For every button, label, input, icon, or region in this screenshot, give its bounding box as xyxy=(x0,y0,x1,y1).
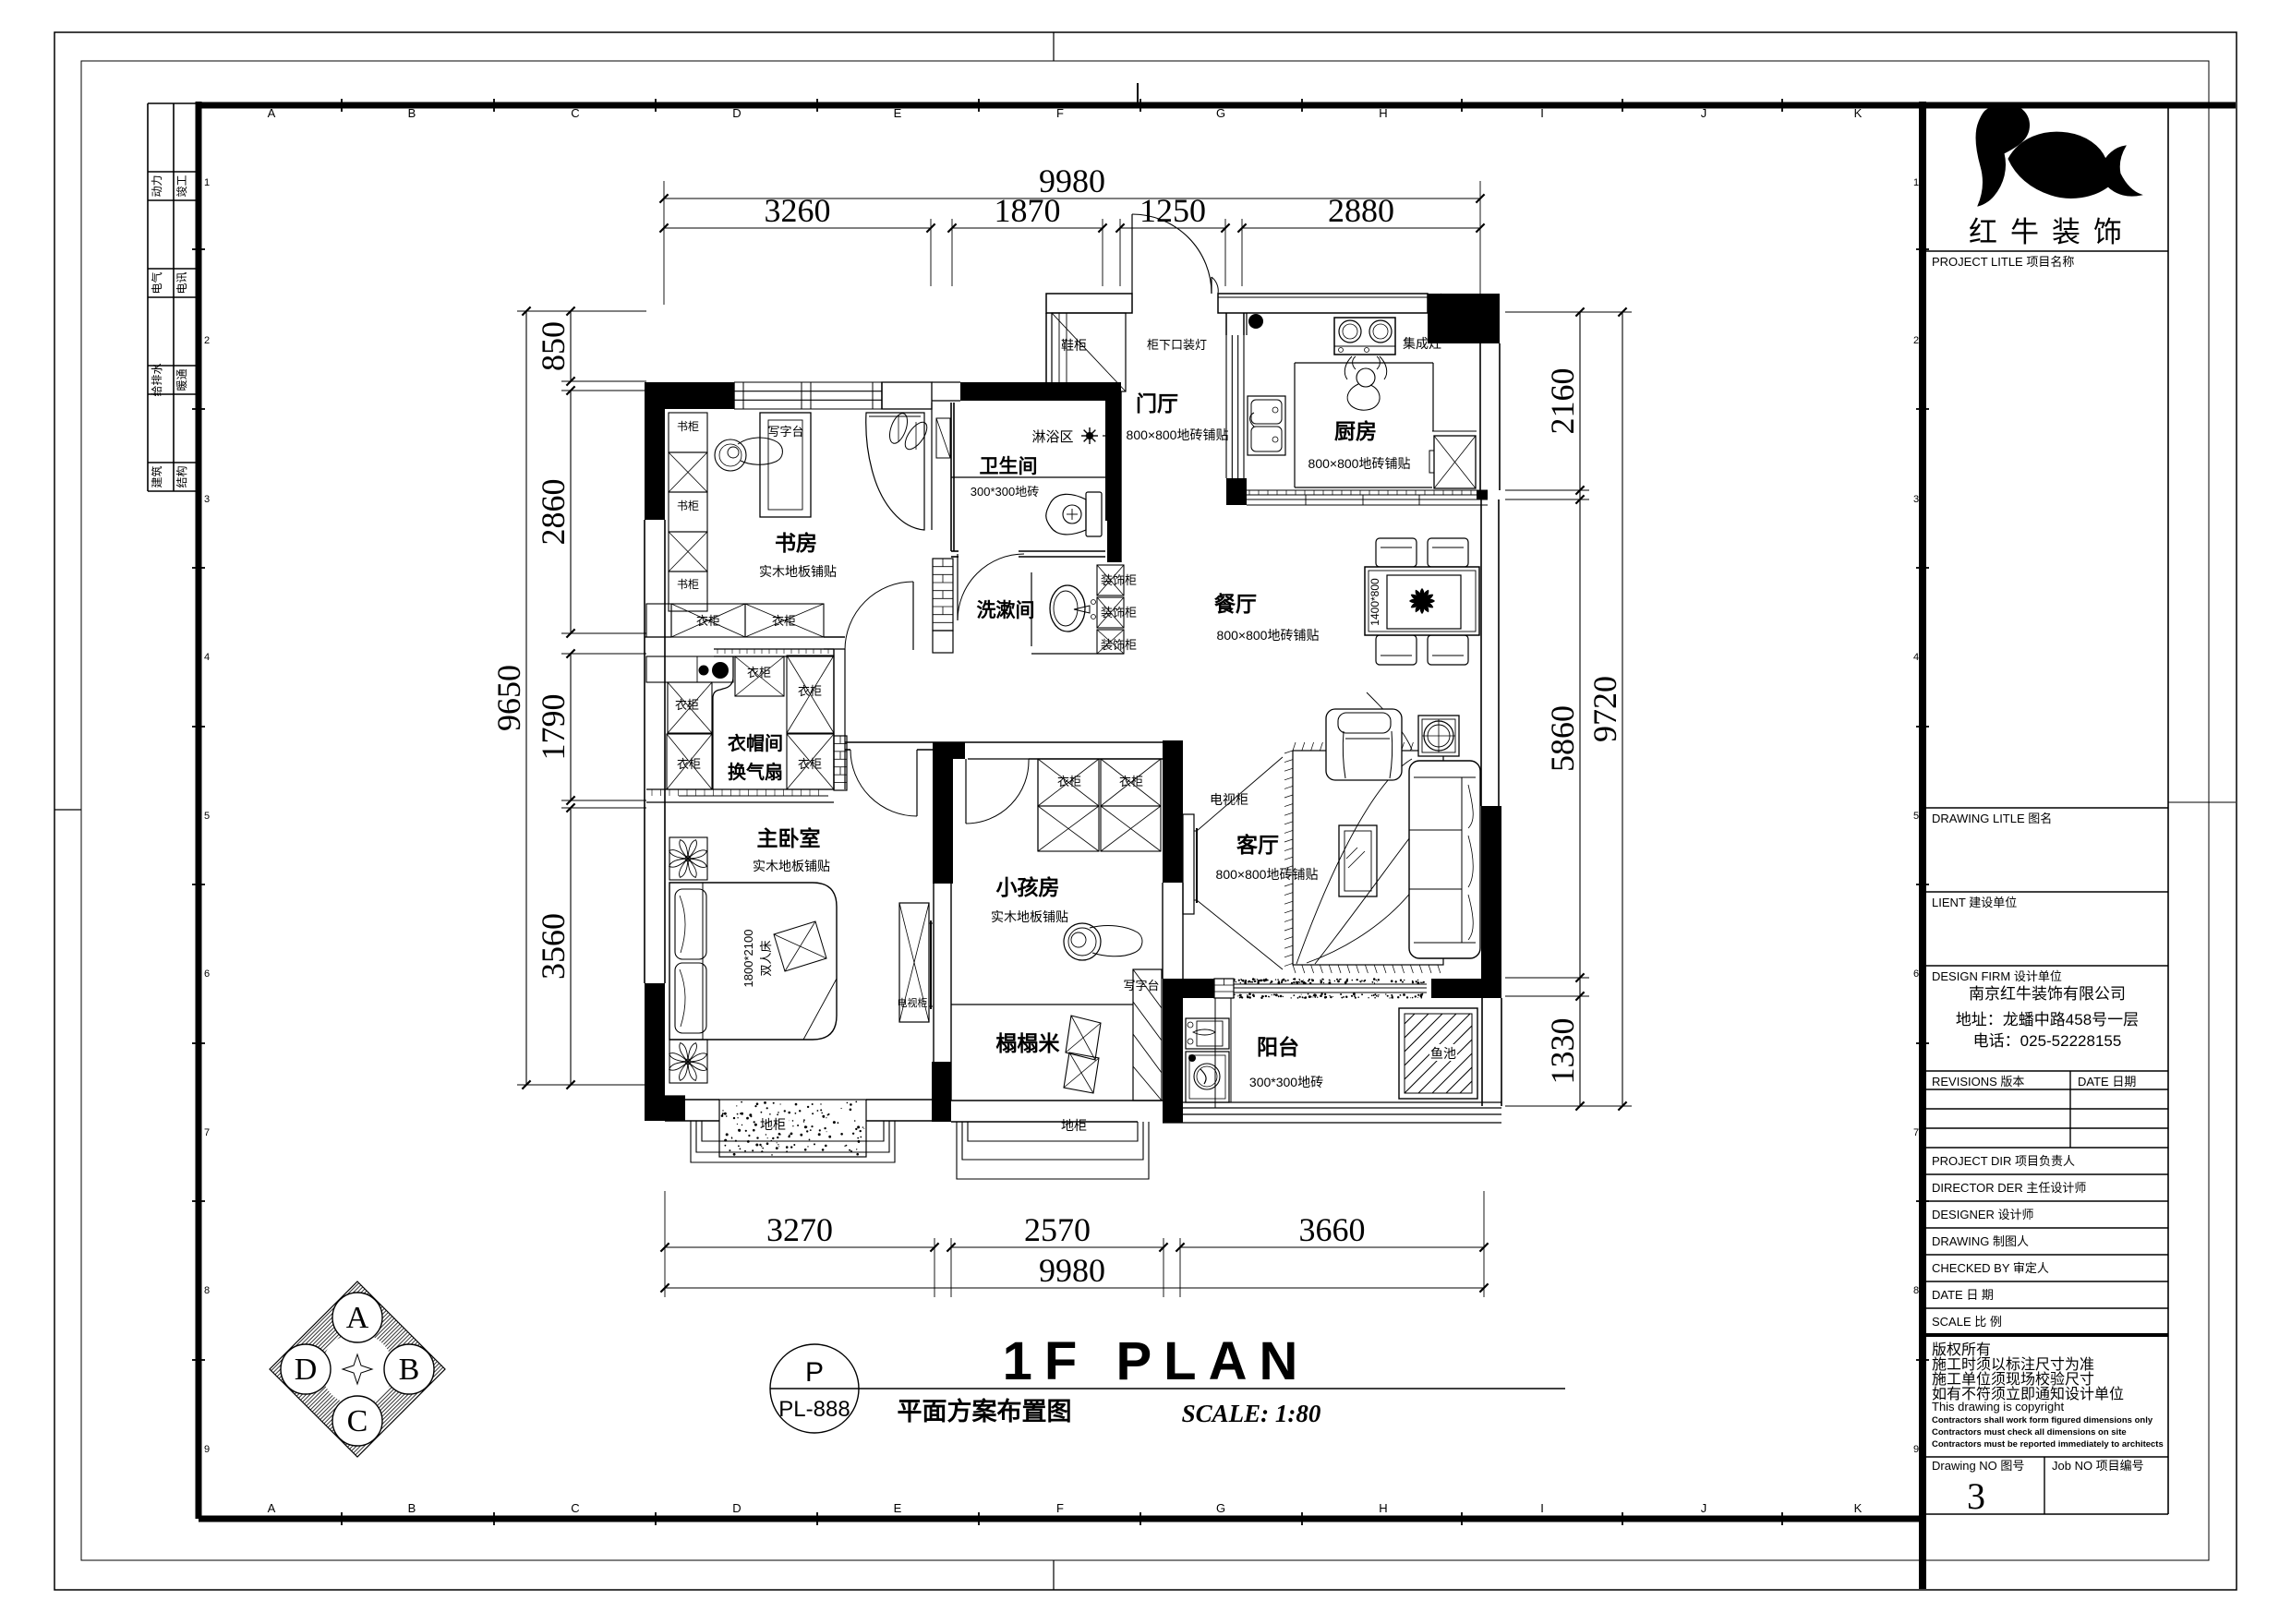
svg-text:2860: 2860 xyxy=(535,479,572,546)
svg-text:洗漱间: 洗漱间 xyxy=(977,600,1035,621)
svg-text:2880: 2880 xyxy=(1328,192,1394,229)
svg-text:3260: 3260 xyxy=(765,192,831,229)
svg-text:暖通: 暖通 xyxy=(175,368,188,391)
svg-text:E: E xyxy=(894,106,902,120)
svg-text:电视柜: 电视柜 xyxy=(898,996,928,1009)
svg-text:卫生间: 卫生间 xyxy=(980,455,1038,477)
svg-text:3660: 3660 xyxy=(1299,1211,1366,1248)
svg-text:双人床: 双人床 xyxy=(759,940,773,976)
svg-text:D: D xyxy=(732,106,741,120)
svg-text:A: A xyxy=(268,106,276,120)
svg-text:5: 5 xyxy=(204,811,210,822)
svg-text:300*300地砖: 300*300地砖 xyxy=(971,485,1039,499)
svg-text:书柜: 书柜 xyxy=(677,420,699,433)
svg-text:LIENT 建设单位: LIENT 建设单位 xyxy=(1932,896,2017,909)
svg-text:结构: 结构 xyxy=(175,465,188,487)
svg-text:衣柜: 衣柜 xyxy=(772,614,796,628)
svg-text:DATE 日期: DATE 日期 xyxy=(2078,1075,2136,1089)
svg-text:850: 850 xyxy=(535,321,572,371)
svg-text:客厅: 客厅 xyxy=(1236,833,1279,857)
svg-text:施工时须以标注尺寸为准: 施工时须以标注尺寸为准 xyxy=(1932,1356,2094,1373)
svg-text:H: H xyxy=(1379,106,1387,120)
svg-text:实木地板铺贴: 实木地板铺贴 xyxy=(753,859,830,873)
svg-text:3: 3 xyxy=(1913,494,1919,505)
svg-text:鞋柜: 鞋柜 xyxy=(1061,338,1087,353)
svg-text:800×800地砖铺贴: 800×800地砖铺贴 xyxy=(1216,867,1319,882)
svg-text:3560: 3560 xyxy=(535,913,572,980)
svg-text:C: C xyxy=(571,106,579,120)
svg-text:Drawing NO 图号: Drawing NO 图号 xyxy=(1932,1459,2024,1473)
svg-text:B: B xyxy=(408,106,416,120)
svg-text:PL-888: PL-888 xyxy=(778,1397,850,1422)
svg-text:主卧室: 主卧室 xyxy=(757,826,821,850)
svg-text:300*300地砖: 300*300地砖 xyxy=(1249,1075,1323,1089)
svg-text:衣柜: 衣柜 xyxy=(675,698,699,712)
svg-text:PROJECT LITLE 项目名称: PROJECT LITLE 项目名称 xyxy=(1932,255,2074,269)
svg-text:7: 7 xyxy=(1913,1127,1919,1138)
svg-text:DATE 日 期: DATE 日 期 xyxy=(1932,1288,1994,1302)
svg-text:电讯: 电讯 xyxy=(175,271,188,294)
svg-text:9980: 9980 xyxy=(1039,1252,1105,1289)
svg-text:衣柜: 衣柜 xyxy=(747,666,771,680)
svg-text:地址：龙蟠中路458号一层: 地址：龙蟠中路458号一层 xyxy=(1956,1011,2139,1029)
svg-text:南京红牛装饰有限公司: 南京红牛装饰有限公司 xyxy=(1969,985,2126,1003)
svg-text:柜下口装灯: 柜下口装灯 xyxy=(1147,338,1207,352)
svg-text:竣工: 竣工 xyxy=(175,174,188,197)
svg-text:REVISIONS 版本: REVISIONS 版本 xyxy=(1932,1075,2024,1089)
svg-text:2: 2 xyxy=(1913,335,1919,346)
svg-text:装饰柜: 装饰柜 xyxy=(1101,573,1137,587)
svg-text:衣柜: 衣柜 xyxy=(1119,775,1143,788)
svg-text:4: 4 xyxy=(1913,652,1919,663)
svg-text:实木地板铺贴: 实木地板铺贴 xyxy=(991,909,1068,924)
svg-text:门厅: 门厅 xyxy=(1136,391,1178,415)
svg-text:4: 4 xyxy=(204,652,210,663)
svg-text:电视柜: 电视柜 xyxy=(1210,792,1248,807)
svg-text:I: I xyxy=(1540,106,1544,120)
svg-text:榻榻米: 榻榻米 xyxy=(996,1031,1061,1055)
svg-text:实木地板铺贴: 实木地板铺贴 xyxy=(759,564,837,579)
svg-text:衣柜: 衣柜 xyxy=(696,614,720,628)
svg-text:厨房: 厨房 xyxy=(1334,419,1377,443)
svg-text:DESIGNER 设计师: DESIGNER 设计师 xyxy=(1932,1208,2034,1221)
svg-text:衣帽间: 衣帽间 xyxy=(728,732,783,754)
svg-text:衣柜: 衣柜 xyxy=(1057,775,1081,788)
svg-text:B: B xyxy=(408,1501,416,1515)
svg-text:800×800地砖铺贴: 800×800地砖铺贴 xyxy=(1127,427,1229,442)
svg-text:9720: 9720 xyxy=(1586,676,1623,742)
svg-text:鱼池: 鱼池 xyxy=(1430,1046,1456,1061)
svg-text:DRAWING 制图人: DRAWING 制图人 xyxy=(1932,1234,2029,1248)
svg-text:800×800地砖铺贴: 800×800地砖铺贴 xyxy=(1217,628,1320,643)
svg-text:SCALE: 1:80: SCALE: 1:80 xyxy=(1182,1400,1321,1427)
svg-text:G: G xyxy=(1216,1501,1225,1515)
svg-text:J: J xyxy=(1701,106,1707,120)
svg-text:给排水: 给排水 xyxy=(151,363,163,396)
svg-text:书柜: 书柜 xyxy=(677,499,699,512)
svg-text:建筑: 建筑 xyxy=(150,465,163,487)
svg-text:5: 5 xyxy=(1913,811,1919,822)
svg-text:6: 6 xyxy=(204,968,210,980)
svg-text:1870: 1870 xyxy=(995,192,1061,229)
svg-text:G: G xyxy=(1216,106,1225,120)
svg-text:1250: 1250 xyxy=(1139,192,1206,229)
svg-text:H: H xyxy=(1379,1501,1387,1515)
svg-text:1330: 1330 xyxy=(1544,1018,1581,1085)
svg-text:1F PLAN: 1F PLAN xyxy=(1003,1331,1310,1391)
svg-text:D: D xyxy=(295,1353,318,1387)
svg-text:6: 6 xyxy=(1913,968,1919,980)
svg-text:9650: 9650 xyxy=(490,665,527,731)
svg-text:1: 1 xyxy=(204,177,210,188)
svg-text:衣柜: 衣柜 xyxy=(798,684,822,698)
svg-text:A: A xyxy=(346,1301,369,1335)
svg-text:E: E xyxy=(894,1501,902,1515)
svg-text:1800*2100: 1800*2100 xyxy=(742,930,755,988)
svg-text:J: J xyxy=(1701,1501,1707,1515)
svg-text:2160: 2160 xyxy=(1544,368,1581,435)
svg-text:1790: 1790 xyxy=(535,694,572,761)
svg-text:Contractors must check all dim: Contractors must check all dimensions on… xyxy=(1932,1427,2127,1438)
svg-text:F: F xyxy=(1056,106,1064,120)
svg-text:D: D xyxy=(732,1501,741,1515)
svg-text:Contractors must be reported i: Contractors must be reported immediately… xyxy=(1932,1439,2164,1450)
svg-text:1: 1 xyxy=(1913,177,1919,188)
svg-text:3: 3 xyxy=(1967,1475,1985,1517)
svg-text:CHECKED BY 审定人: CHECKED BY 审定人 xyxy=(1932,1261,2049,1275)
svg-text:书房: 书房 xyxy=(775,531,817,555)
svg-text:书柜: 书柜 xyxy=(677,578,699,591)
svg-text:红牛装饰: 红牛装饰 xyxy=(1969,216,2135,248)
svg-text:平面方案布置图: 平面方案布置图 xyxy=(898,1397,1072,1426)
svg-text:动力: 动力 xyxy=(151,174,163,197)
svg-text:7: 7 xyxy=(204,1127,210,1138)
svg-text:C: C xyxy=(347,1404,368,1438)
svg-text:8: 8 xyxy=(1913,1285,1919,1296)
svg-text:地柜: 地柜 xyxy=(1061,1118,1087,1133)
svg-text:写字台: 写字台 xyxy=(1123,979,1159,992)
svg-text:阳台: 阳台 xyxy=(1257,1035,1299,1059)
svg-text:Job NO 项目编号: Job NO 项目编号 xyxy=(2052,1459,2144,1473)
svg-text:集成灶: 集成灶 xyxy=(1403,336,1441,351)
svg-text:This drawing is copyright: This drawing is copyright xyxy=(1932,1400,2064,1413)
svg-text:F: F xyxy=(1056,1501,1064,1515)
svg-text:2570: 2570 xyxy=(1024,1211,1091,1248)
svg-text:I: I xyxy=(1540,1501,1544,1515)
svg-text:电气: 电气 xyxy=(150,271,163,294)
svg-text:5860: 5860 xyxy=(1544,705,1581,772)
svg-text:DRAWING LITLE 图名: DRAWING LITLE 图名 xyxy=(1932,812,2052,825)
svg-text:A: A xyxy=(268,1501,276,1515)
svg-text:衣柜: 衣柜 xyxy=(677,757,701,771)
svg-text:9: 9 xyxy=(1913,1444,1919,1455)
svg-text:施工单位须现场校验尺寸: 施工单位须现场校验尺寸 xyxy=(1932,1371,2094,1388)
svg-text:K: K xyxy=(1854,1501,1863,1515)
svg-text:小孩房: 小孩房 xyxy=(996,875,1060,899)
svg-text:衣柜: 衣柜 xyxy=(798,757,822,771)
svg-text:淋浴区: 淋浴区 xyxy=(1031,429,1073,445)
svg-text:B: B xyxy=(399,1353,420,1387)
svg-text:电话：025-52228155: 电话：025-52228155 xyxy=(1973,1032,2122,1050)
svg-text:800×800地砖铺贴: 800×800地砖铺贴 xyxy=(1308,456,1411,471)
svg-text:K: K xyxy=(1854,106,1863,120)
svg-text:P: P xyxy=(805,1357,824,1388)
svg-text:DIRECTOR DER 主任设计师: DIRECTOR DER 主任设计师 xyxy=(1932,1181,2086,1195)
svg-text:2: 2 xyxy=(204,335,210,346)
svg-text:SCALE 比 例: SCALE 比 例 xyxy=(1932,1315,2002,1329)
svg-text:9: 9 xyxy=(204,1444,210,1455)
svg-text:PROJECT DIR 项目负责人: PROJECT DIR 项目负责人 xyxy=(1932,1154,2075,1168)
svg-text:地柜: 地柜 xyxy=(760,1117,786,1132)
svg-text:装饰柜: 装饰柜 xyxy=(1101,638,1137,652)
svg-text:3: 3 xyxy=(204,494,210,505)
svg-text:3270: 3270 xyxy=(766,1211,833,1248)
svg-text:C: C xyxy=(571,1501,579,1515)
svg-text:1400*800: 1400*800 xyxy=(1369,578,1381,626)
svg-text:写字台: 写字台 xyxy=(767,425,803,439)
svg-text:DESIGN FIRM 设计单位: DESIGN FIRM 设计单位 xyxy=(1932,969,2062,983)
svg-text:版权所有: 版权所有 xyxy=(1932,1341,1991,1358)
svg-text:装饰柜: 装饰柜 xyxy=(1101,606,1137,620)
svg-text:Contractors shall work form fi: Contractors shall work form figured dime… xyxy=(1932,1415,2153,1426)
svg-text:换气扇: 换气扇 xyxy=(728,761,783,783)
svg-text:8: 8 xyxy=(204,1285,210,1296)
svg-text:餐厅: 餐厅 xyxy=(1214,592,1257,616)
